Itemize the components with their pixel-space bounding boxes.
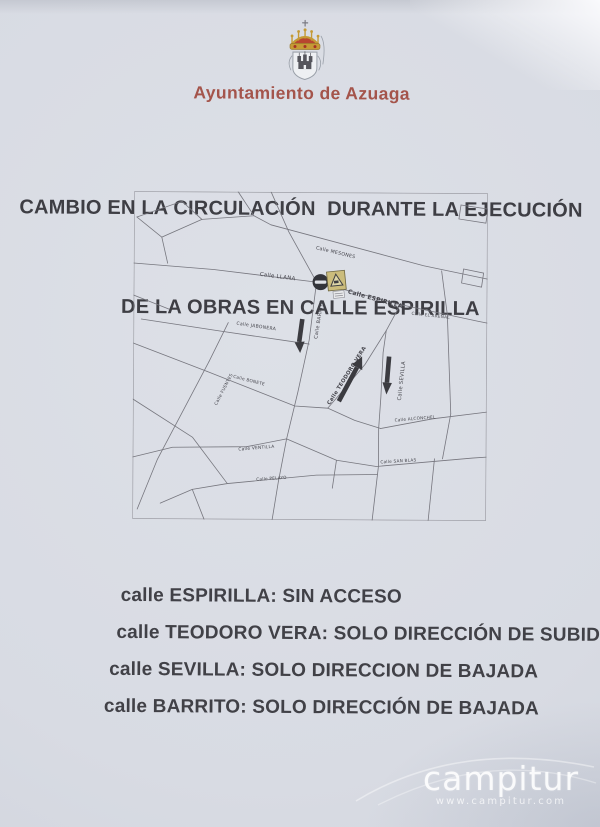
street-label: Calle PELAYO — [256, 475, 287, 482]
street-label: Calle LLANA — [259, 272, 296, 283]
street-label: Calle BONETE — [232, 374, 265, 388]
street-label: Calle BARRITO — [313, 299, 325, 339]
rule-teodoro-vera: calle TEODORO VERA: SOLO DIRECCIÓN DE SU… — [0, 613, 599, 654]
street-lines — [132, 191, 488, 521]
street-label: Calle TEODORO VERA — [326, 345, 368, 406]
direction-arrow-barrito-down — [295, 319, 305, 353]
notice-sheet: Ayuntamiento de Azuaga CAMBIO EN LA CIRC… — [0, 0, 600, 827]
direction-arrows — [294, 319, 392, 402]
rule-barrito: calle BARRITO: SOLO DIRECCIÓN DE BAJADA — [0, 687, 598, 728]
municipality-name: Ayuntamiento de Azuaga — [2, 81, 600, 106]
roadworks-sign-icon — [327, 270, 348, 299]
rule-sevilla: calle SEVILLA: SOLO DIRECCION DE BAJADA — [0, 650, 598, 691]
street-label: Calle EL ARENAL — [411, 311, 450, 320]
circulation-rules: calle ESPIRILLA: SIN ACCESO calle TEODOR… — [0, 576, 599, 728]
street-label: Calle ESPIRILLA — [347, 288, 404, 310]
street-label: Calle SEVILLA — [397, 361, 407, 401]
street-label: Calle MESONES — [315, 245, 356, 260]
street-label: Calle JABONERA — [236, 321, 277, 333]
street-map: Calle MESONES Calle LLANA Calle ESPIRILL… — [132, 191, 488, 521]
watermark: campitur www.campitur.com — [406, 763, 596, 825]
no-entry-sign-icon — [313, 274, 329, 290]
notice-photo: Ayuntamiento de Azuaga CAMBIO EN LA CIRC… — [0, 0, 600, 827]
municipal-crest-icon — [279, 18, 331, 82]
watermark-brand: campitur — [406, 763, 596, 795]
rule-espirilla: calle ESPIRILLA: SIN ACCESO — [0, 576, 599, 617]
direction-arrow-sevilla-down — [382, 357, 392, 395]
map-border — [133, 191, 488, 520]
street-label: Calle ALCONCHEL — [394, 414, 436, 422]
